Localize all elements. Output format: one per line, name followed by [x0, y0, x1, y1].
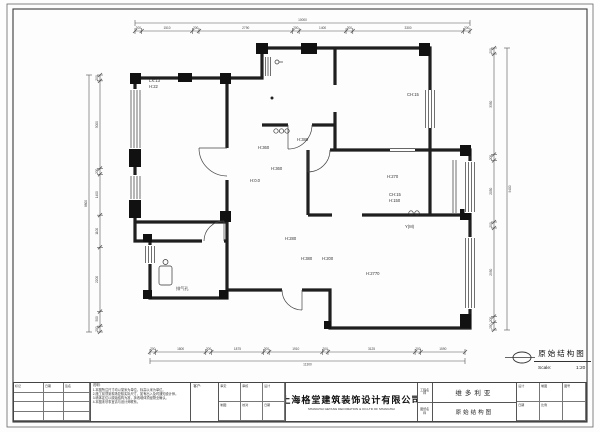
info-cell: 图号: [563, 383, 586, 402]
project-name-label: 工程名称: [418, 383, 432, 403]
drawing-title: 原始结构图: [538, 348, 586, 358]
plan-label: H:380: [297, 137, 309, 142]
fixtures-layer: [159, 60, 419, 285]
dim-label: 3300: [404, 26, 411, 30]
plan-label: H:270: [387, 174, 399, 179]
dim-label: 250: [489, 323, 493, 329]
sig-cell: 审定: [219, 383, 241, 402]
plan-label: 排气孔: [176, 285, 189, 292]
stove-burners-icon: [274, 129, 289, 133]
drawing-name-label: 图纸名称: [418, 403, 432, 422]
toilet-tank-icon: [163, 260, 168, 265]
dim-label: 3125: [368, 347, 375, 351]
dim-label: 200: [489, 317, 493, 323]
drawing-name: 原始结构图: [433, 403, 517, 422]
dim-label: 3350: [489, 100, 493, 107]
plan-label: H:22: [149, 84, 159, 89]
plan-label: CH:15: [389, 192, 402, 197]
dim-label: 200: [95, 326, 99, 332]
names-cell: 维多利亚 原始结构图: [433, 383, 518, 421]
name-labels-cell: 工程名称 图纸名称: [418, 383, 433, 421]
scale-value: 1:20: [576, 365, 586, 371]
info-cell: 比例: [540, 402, 563, 421]
dim-label: 200: [415, 347, 421, 351]
plan-label: H:380: [301, 256, 313, 261]
dim-label: 200: [293, 26, 299, 30]
dim-label: 1400: [95, 191, 99, 198]
dim-label: 10000: [298, 18, 307, 22]
dim-label: 11300: [303, 363, 312, 367]
windows-layer: [130, 57, 476, 309]
dim-label: 1100: [95, 228, 99, 235]
dim-label: 200: [95, 168, 99, 174]
drawing-title-bubble: 原始结构图 Scale: 1:20: [505, 348, 591, 371]
dim-label: 200: [150, 347, 156, 351]
plan-label: H:360: [271, 166, 283, 171]
note-line: 4.本图未尽事宜请与设计师联系。: [93, 401, 189, 405]
revision-header: 签名: [64, 383, 90, 393]
plan-label: H:2770: [366, 271, 380, 276]
dim-label: 9400: [508, 185, 512, 192]
toilet-fixture-icon: [159, 266, 172, 285]
sig-cell: 设计: [263, 383, 285, 402]
right-info-grid: 设计 制图 图号 日期 比例: [517, 383, 586, 421]
dim-label: 2790: [242, 26, 249, 30]
info-cell: 日期: [517, 402, 540, 421]
dim-label: 200: [193, 26, 199, 30]
dim-label: 200: [206, 347, 212, 351]
info-cell: [563, 402, 586, 421]
dim-label: 200: [323, 347, 329, 351]
plan-label: H:360: [258, 145, 270, 150]
dim-label: 2950: [489, 268, 493, 275]
revision-header: 日期: [44, 383, 64, 393]
plan-label: H:200: [322, 256, 334, 261]
info-cell: 制图: [540, 383, 563, 402]
drawing-sheet: { "doc": { "sheet_bg": "#fdfdfd", "line_…: [0, 0, 600, 432]
scale-label: Scale:: [538, 365, 551, 371]
plan-label: H:150: [389, 198, 401, 203]
dim-label: 200: [347, 26, 353, 30]
dim-label: 1800: [177, 347, 184, 351]
floor-plan-canvas: 2001510200279020014002003300200100002001…: [0, 0, 600, 432]
plan-label: Y(M): [405, 224, 415, 229]
plan-label: H:0.0: [250, 178, 261, 183]
project-name: 维多利亚: [433, 383, 517, 403]
dim-label: 200: [464, 26, 470, 30]
notes-cell: 说明: 1.本图所注尺寸均以毫米为单位，标高以米为单位。 2.施工前须到现场复核…: [91, 383, 192, 421]
sig-cell: 日期: [263, 402, 285, 421]
point-marker-icon: [271, 97, 274, 100]
plan-label: LX:13: [149, 78, 161, 83]
plumbing-point-icon: [275, 60, 283, 64]
revision-header: 标记: [14, 383, 44, 393]
dim-label: 200: [489, 48, 493, 54]
client-cell: 客户:: [191, 383, 219, 421]
sig-cell: 审核: [241, 383, 263, 402]
dim-label: 1510: [163, 26, 170, 30]
plan-label: H:280: [285, 236, 297, 241]
sig-cell: 校对: [241, 402, 263, 421]
dim-label: 200: [136, 26, 142, 30]
dim-label: 200: [95, 75, 99, 81]
company-cell: 上海格堂建筑装饰设计有限公司 SHANGHAI GETANG DECORATIO…: [286, 383, 418, 421]
sig-cell: 制图: [219, 402, 241, 421]
doors-layer: [199, 125, 330, 310]
dim-label: 200: [489, 155, 493, 161]
dimensions-layer: 2001510200279020014002003300200100002001…: [84, 18, 512, 366]
dim-label: 200: [264, 347, 270, 351]
dim-label: 1910: [292, 347, 299, 351]
dim-label: 1875: [234, 347, 241, 351]
plan-labels-layer: LX:13H:22CH:15H:380H:360H:360H:0.0H:270C…: [149, 78, 420, 292]
dim-label: 2200: [95, 276, 99, 283]
revision-table: 标记 日期 签名: [14, 383, 91, 421]
plan-label: CH:15: [407, 92, 420, 97]
company-name-cn: 上海格堂建筑装饰设计有限公司: [286, 393, 418, 406]
info-cell: 设计: [517, 383, 540, 402]
dim-label: 3000: [95, 121, 99, 128]
company-name-en: SHANGHAI GETANG DECORATION & CO.LTD OF S…: [308, 407, 395, 411]
title-block: 标记 日期 签名 说明: 1.本图所注尺寸均以毫米为单位，标高以米为单位。 2.…: [13, 382, 587, 422]
signature-grid: 审定 审核 设计 制图 校对 日期: [219, 383, 286, 421]
dim-label: 2050: [489, 187, 493, 194]
dim-label: 1400: [319, 26, 326, 30]
dim-label: 500: [95, 316, 99, 322]
dim-label: 1590: [439, 347, 446, 351]
dim-label: 8800: [84, 200, 88, 207]
dim-label: 200: [489, 222, 493, 228]
sheet-frame: [7, 4, 593, 427]
